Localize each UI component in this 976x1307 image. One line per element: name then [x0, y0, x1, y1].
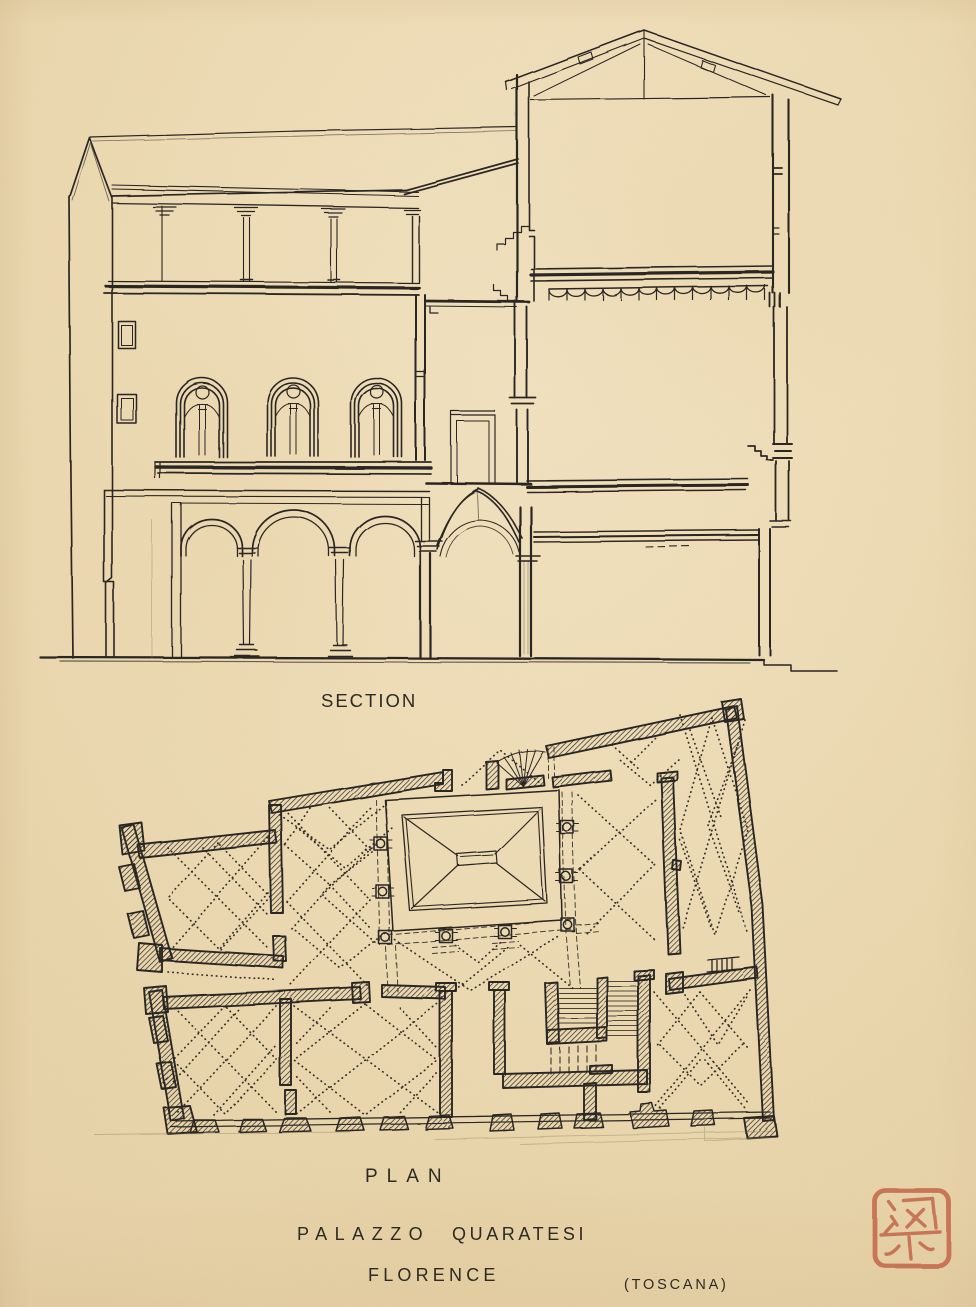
svg-text:SECTION: SECTION — [321, 690, 417, 711]
svg-text:PALAZZO: PALAZZO — [297, 1224, 430, 1244]
svg-text:PLAN: PLAN — [365, 1166, 451, 1187]
svg-text:QUARATESI: QUARATESI — [452, 1224, 587, 1244]
svg-text:(TOSCANA): (TOSCANA) — [624, 1277, 729, 1293]
svg-text:FLORENCE: FLORENCE — [368, 1265, 500, 1285]
